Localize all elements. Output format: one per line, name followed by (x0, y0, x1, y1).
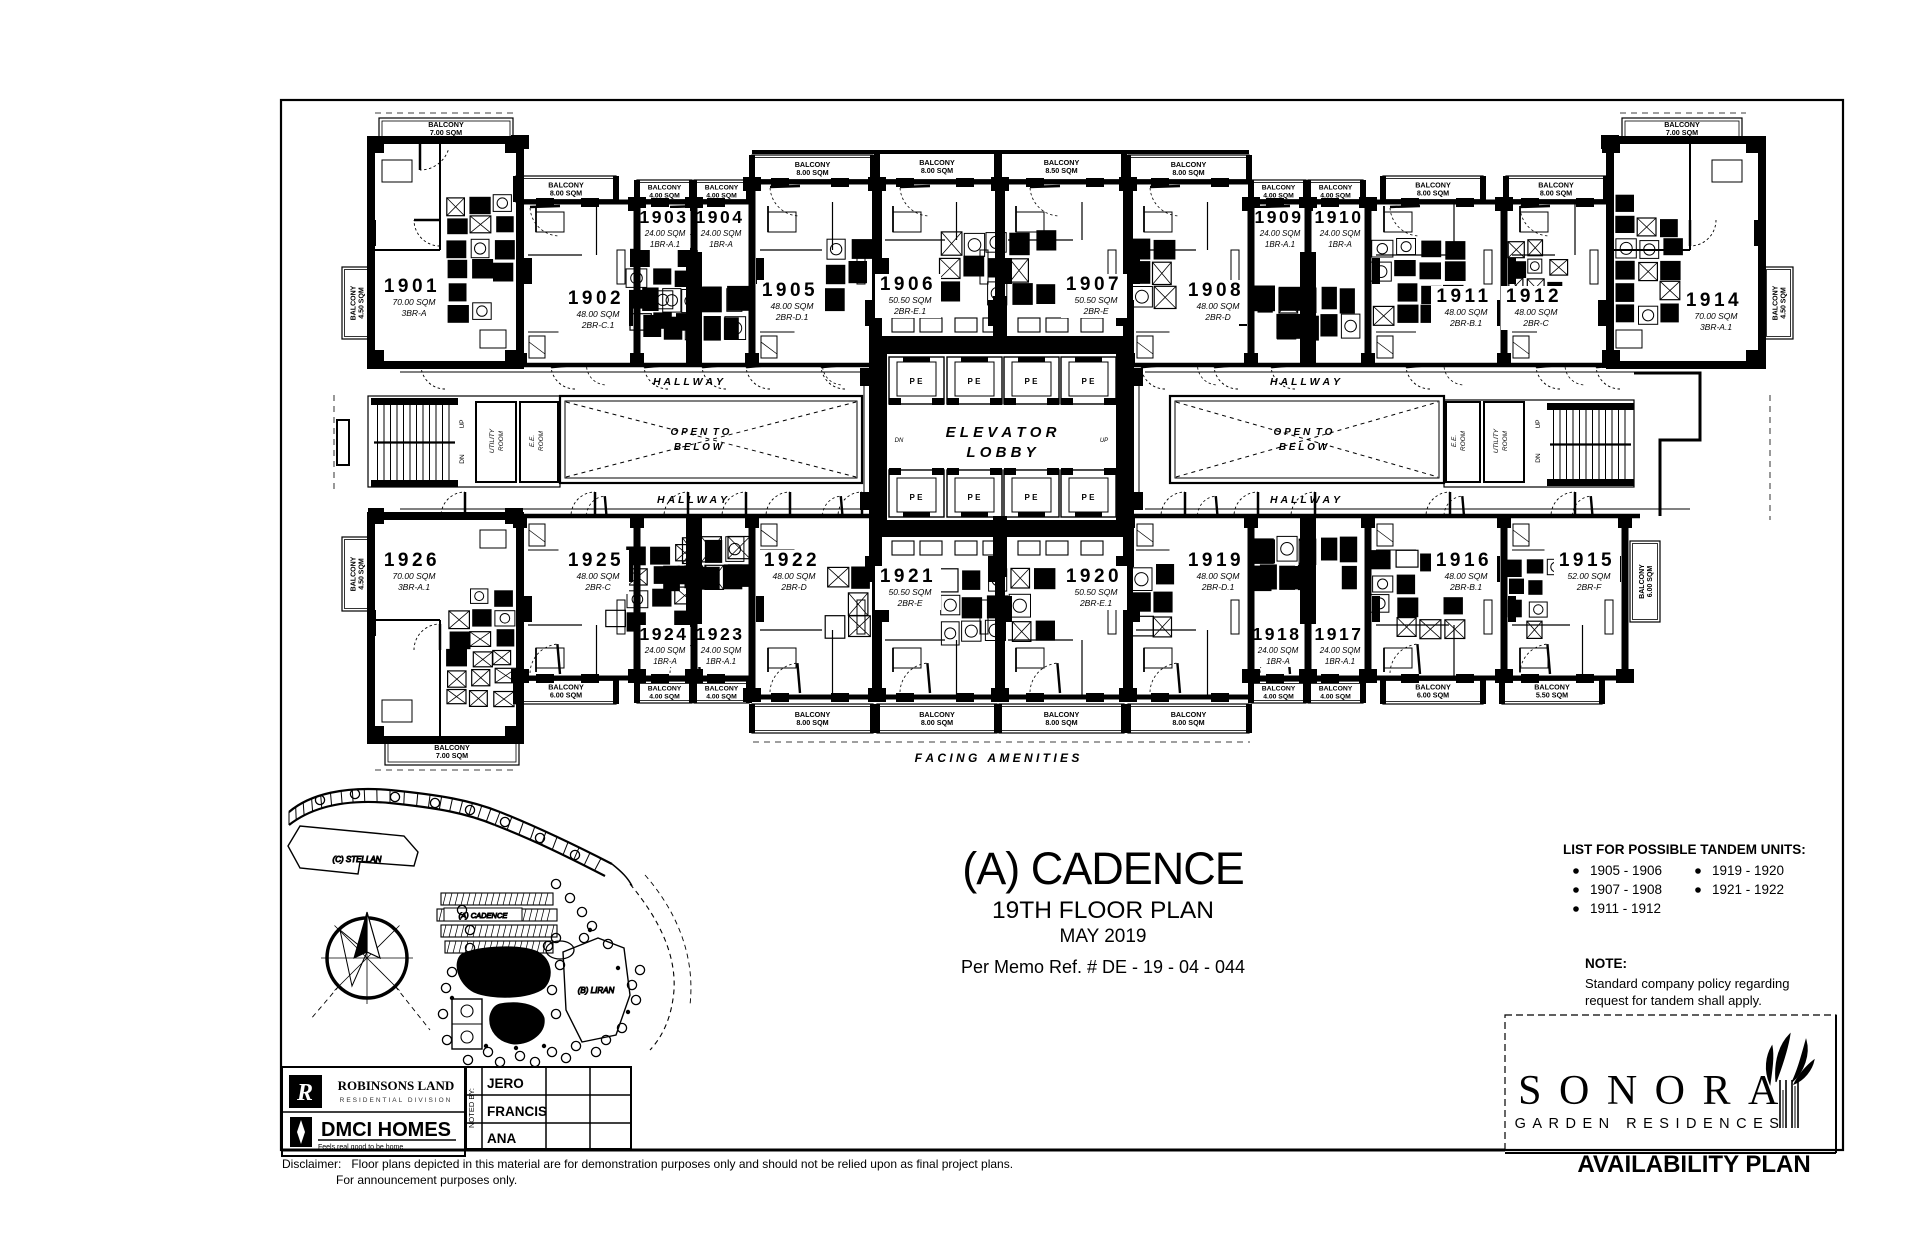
svg-text:4.00 SQM: 4.00 SQM (1320, 694, 1351, 701)
svg-text:3BR-A.1: 3BR-A.1 (1700, 322, 1732, 332)
svg-text:1911: 1911 (1436, 286, 1491, 307)
svg-text:1921 - 1922: 1921 - 1922 (1712, 882, 1784, 897)
svg-text:1BR-A: 1BR-A (1266, 657, 1290, 666)
svg-text:O P E N T O: O P E N T O (1274, 427, 1333, 438)
svg-text:70.00 SQM: 70.00 SQM (393, 297, 437, 307)
svg-text:request for tandem shall apply: request for tandem shall apply. (1585, 993, 1762, 1008)
svg-text:1BR-A: 1BR-A (709, 240, 733, 249)
svg-text:BALCONY: BALCONY (705, 686, 739, 693)
svg-text:8.00 SQM: 8.00 SQM (921, 718, 953, 727)
svg-text:1915: 1915 (1559, 550, 1615, 571)
svg-text:8.00 SQM: 8.00 SQM (1172, 718, 1204, 727)
svg-text:GARDEN RESIDENCES: GARDEN RESIDENCES (1515, 1116, 1786, 1132)
svg-text:24.00 SQM: 24.00 SQM (1259, 229, 1301, 238)
svg-text:2BR-E: 2BR-E (1082, 306, 1108, 316)
svg-text:Standard company policy regard: Standard company policy regarding (1585, 976, 1790, 991)
svg-text:1BR-A.1: 1BR-A.1 (706, 657, 736, 666)
svg-text:1924: 1924 (640, 624, 689, 644)
svg-text:1911 - 1912: 1911 - 1912 (1590, 901, 1661, 916)
svg-text:AVAILABILITY PLAN: AVAILABILITY PLAN (1577, 1151, 1810, 1178)
svg-text:50.50 SQM: 50.50 SQM (1075, 587, 1119, 597)
svg-text:2BR-F: 2BR-F (1576, 582, 1602, 592)
svg-text:H A L L W A Y: H A L L W A Y (653, 376, 724, 388)
svg-text:48.00 SQM: 48.00 SQM (1197, 571, 1241, 581)
svg-text:8.00 SQM: 8.00 SQM (1172, 168, 1204, 177)
svg-text:2BR-D.1: 2BR-D.1 (775, 312, 809, 322)
svg-text:NOTE:: NOTE: (1585, 956, 1627, 971)
svg-text:UP: UP (459, 419, 466, 428)
svg-text:1919 - 1920: 1919 - 1920 (1712, 863, 1784, 878)
svg-text:1914: 1914 (1686, 290, 1742, 311)
svg-text:For announcement purposes only: For announcement purposes only. (336, 1173, 517, 1187)
svg-text:1907 - 1908: 1907 - 1908 (1590, 882, 1662, 897)
svg-text:1902: 1902 (568, 288, 624, 309)
svg-text:3BR-A.1: 3BR-A.1 (398, 582, 430, 592)
svg-text:NOTED BY:: NOTED BY: (467, 1088, 476, 1128)
svg-text:4.00 SQM: 4.00 SQM (706, 694, 737, 701)
svg-text:1916: 1916 (1436, 550, 1492, 571)
svg-text:8.00 SQM: 8.00 SQM (1540, 189, 1572, 198)
svg-text:1909: 1909 (1255, 207, 1304, 227)
svg-text:52.00 SQM: 52.00 SQM (1568, 571, 1612, 581)
svg-text:48.00 SQM: 48.00 SQM (1445, 307, 1489, 317)
svg-text:24.00 SQM: 24.00 SQM (1257, 646, 1299, 655)
svg-text:1BR-A.1: 1BR-A.1 (1325, 657, 1355, 666)
svg-text:R: R (296, 1080, 313, 1106)
svg-text:BALCONY: BALCONY (1773, 285, 1780, 320)
svg-text:1BR-A.1: 1BR-A.1 (1265, 240, 1295, 249)
svg-text:24.00 SQM: 24.00 SQM (1319, 229, 1361, 238)
svg-text:DN: DN (895, 438, 904, 444)
svg-text:LIST FOR POSSIBLE TANDEM UNITS: LIST FOR POSSIBLE TANDEM UNITS: (1563, 842, 1806, 857)
svg-text:1BR-A.1: 1BR-A.1 (650, 240, 680, 249)
svg-text:8.00 SQM: 8.00 SQM (550, 189, 582, 198)
svg-text:6.00 SQM: 6.00 SQM (1417, 691, 1449, 700)
svg-text:H A L L W A Y: H A L L W A Y (657, 494, 728, 506)
svg-text:E L E V A T O R: E L E V A T O R (946, 424, 1057, 441)
svg-text:2BR-D: 2BR-D (780, 582, 807, 592)
svg-text:1910: 1910 (1315, 207, 1364, 227)
svg-text:ROOM: ROOM (1460, 430, 1467, 451)
svg-text:4.00 SQM: 4.00 SQM (649, 694, 680, 701)
svg-text:8.00 SQM: 8.00 SQM (1417, 189, 1449, 198)
svg-text:(A) CADENCE: (A) CADENCE (962, 843, 1244, 894)
svg-text:24.00 SQM: 24.00 SQM (644, 229, 686, 238)
svg-text:19TH FLOOR PLAN: 19TH FLOOR PLAN (992, 897, 1214, 924)
svg-text:7.00 SQM: 7.00 SQM (1666, 128, 1698, 137)
svg-text:BALCONY: BALCONY (1319, 185, 1353, 192)
svg-text:ANA: ANA (487, 1131, 516, 1146)
svg-text:1920: 1920 (1066, 566, 1122, 587)
svg-text:4.50 SQM: 4.50 SQM (359, 558, 366, 590)
svg-text:H A L L W A Y: H A L L W A Y (1270, 494, 1341, 506)
svg-text:2BR-D.1: 2BR-D.1 (1201, 582, 1235, 592)
svg-text:S O N O R A: S O N O R A (1518, 1068, 1782, 1114)
svg-text:1901: 1901 (384, 276, 440, 297)
svg-text:6.00 SQM: 6.00 SQM (1647, 566, 1654, 598)
svg-text:48.00 SQM: 48.00 SQM (577, 571, 621, 581)
svg-text:P E: P E (1025, 377, 1039, 386)
svg-text:1903: 1903 (640, 207, 689, 227)
svg-text:5.50 SQM: 5.50 SQM (1536, 691, 1568, 700)
svg-text:B E L O W: B E L O W (674, 442, 724, 453)
svg-text:24.00 SQM: 24.00 SQM (700, 229, 742, 238)
svg-text:48.00 SQM: 48.00 SQM (1197, 301, 1241, 311)
svg-text:48.00 SQM: 48.00 SQM (1445, 571, 1489, 581)
svg-text:ROBINSONS LAND: ROBINSONS LAND (338, 1078, 455, 1093)
svg-text:2BR-D: 2BR-D (1204, 312, 1231, 322)
svg-text:UP: UP (1535, 419, 1542, 428)
svg-text:BALCONY: BALCONY (648, 185, 682, 192)
svg-text:DMCI HOMES: DMCI HOMES (321, 1119, 451, 1141)
svg-text:F A C I N G A M E N I T I E: F A C I N G A M E N I T I E S (915, 751, 1080, 765)
svg-text:H A L L W A Y: H A L L W A Y (1270, 376, 1341, 388)
svg-text:2BR-B.1: 2BR-B.1 (1449, 318, 1482, 328)
svg-text:24.00 SQM: 24.00 SQM (644, 646, 686, 655)
svg-text:BALCONY: BALCONY (1319, 686, 1353, 693)
svg-text:48.00 SQM: 48.00 SQM (771, 301, 815, 311)
svg-text:P E: P E (1025, 493, 1039, 502)
svg-text:4.00 SQM: 4.00 SQM (1263, 694, 1294, 701)
svg-text:70.00 SQM: 70.00 SQM (393, 571, 437, 581)
svg-text:(B) LIRAN: (B) LIRAN (578, 986, 615, 995)
svg-text:8.00 SQM: 8.00 SQM (1045, 718, 1077, 727)
svg-text:2BR-C: 2BR-C (584, 582, 611, 592)
svg-text:2BR-B.1: 2BR-B.1 (1449, 582, 1482, 592)
svg-text:P E: P E (1082, 377, 1096, 386)
svg-text:1917: 1917 (1315, 624, 1364, 644)
svg-text:DN: DN (1535, 453, 1542, 463)
svg-text:RESIDENTIAL DIVISION: RESIDENTIAL DIVISION (340, 1097, 453, 1104)
svg-text:1912: 1912 (1506, 286, 1562, 307)
svg-text:BALCONY: BALCONY (705, 185, 739, 192)
svg-text:2BR-E: 2BR-E (896, 598, 922, 608)
svg-text:2BR-E.1: 2BR-E.1 (893, 306, 926, 316)
svg-text:7.00 SQM: 7.00 SQM (430, 128, 462, 137)
svg-text:7.00 SQM: 7.00 SQM (436, 751, 468, 760)
svg-text:8.00 SQM: 8.00 SQM (796, 718, 828, 727)
svg-text:1904: 1904 (696, 207, 745, 227)
svg-text:3BR-A: 3BR-A (401, 308, 426, 318)
svg-text:BALCONY: BALCONY (351, 285, 358, 320)
svg-text:50.50 SQM: 50.50 SQM (889, 587, 933, 597)
svg-text:O P E N T O: O P E N T O (671, 427, 730, 438)
svg-text:UTILITY: UTILITY (489, 428, 496, 453)
svg-text:B E L O W: B E L O W (1279, 442, 1329, 453)
svg-text:BALCONY: BALCONY (648, 686, 682, 693)
svg-text:48.00 SQM: 48.00 SQM (577, 309, 621, 319)
svg-text:1906: 1906 (880, 274, 936, 295)
svg-text:1922: 1922 (764, 550, 820, 571)
svg-text:E.E.: E.E. (1451, 435, 1458, 447)
svg-text:Per Memo Ref. # DE - 19 - 04 -: Per Memo Ref. # DE - 19 - 04 - 044 (961, 957, 1245, 977)
svg-text:1905: 1905 (762, 280, 818, 301)
svg-text:P E: P E (968, 493, 982, 502)
svg-text:24.00 SQM: 24.00 SQM (1319, 646, 1361, 655)
svg-text:1925: 1925 (568, 550, 624, 571)
svg-text:50.50 SQM: 50.50 SQM (1075, 295, 1119, 305)
svg-text:BALCONY: BALCONY (1262, 185, 1296, 192)
svg-text:FRANCIS: FRANCIS (487, 1104, 547, 1119)
svg-text:1921: 1921 (880, 566, 936, 587)
svg-text:2BR-E.1: 2BR-E.1 (1079, 598, 1112, 608)
svg-text:8.00 SQM: 8.00 SQM (921, 166, 953, 175)
svg-text:ROOM: ROOM (538, 430, 545, 451)
svg-text:P E: P E (910, 493, 924, 502)
svg-text:1926: 1926 (384, 550, 440, 571)
svg-text:1905 - 1906: 1905 - 1906 (1590, 863, 1662, 878)
svg-text:BALCONY: BALCONY (1639, 564, 1646, 599)
svg-text:1918: 1918 (1253, 624, 1302, 644)
svg-text:P E: P E (968, 377, 982, 386)
svg-text:BALCONY: BALCONY (1262, 686, 1296, 693)
svg-text:4.50 SQM: 4.50 SQM (359, 287, 366, 319)
svg-text:ROOM: ROOM (498, 430, 505, 451)
svg-text:L O B B Y: L O B B Y (966, 444, 1037, 461)
svg-text:P E: P E (910, 377, 924, 386)
svg-text:4.50 SQM: 4.50 SQM (1781, 287, 1788, 319)
svg-text:UP: UP (1100, 438, 1108, 444)
svg-text:1923: 1923 (696, 624, 745, 644)
svg-text:BALCONY: BALCONY (351, 556, 358, 591)
svg-text:P E: P E (1082, 493, 1096, 502)
svg-text:1908: 1908 (1188, 280, 1244, 301)
svg-text:Feels real good to be home: Feels real good to be home (318, 1144, 403, 1151)
svg-text:1BR-A: 1BR-A (653, 657, 677, 666)
svg-text:1907: 1907 (1066, 274, 1122, 295)
svg-text:1919: 1919 (1188, 550, 1244, 571)
svg-text:48.00 SQM: 48.00 SQM (1515, 307, 1559, 317)
svg-text:MAY 2019: MAY 2019 (1060, 926, 1147, 947)
svg-text:48.00 SQM: 48.00 SQM (773, 571, 817, 581)
svg-text:Disclaimer: Floor plans depi: Disclaimer: Floor plans depicted in this… (282, 1157, 1013, 1171)
svg-text:UTILITY: UTILITY (1493, 428, 1500, 453)
svg-text:6.00 SQM: 6.00 SQM (550, 691, 582, 700)
svg-text:24.00 SQM: 24.00 SQM (700, 646, 742, 655)
svg-text:70.00 SQM: 70.00 SQM (1695, 311, 1739, 321)
svg-text:50.50 SQM: 50.50 SQM (889, 295, 933, 305)
svg-text:8.00 SQM: 8.00 SQM (796, 168, 828, 177)
svg-text:(C) STELLAN: (C) STELLAN (333, 855, 382, 864)
svg-text:2BR-C.1: 2BR-C.1 (581, 320, 615, 330)
svg-text:2BR-C: 2BR-C (1522, 318, 1549, 328)
svg-text:1BR-A: 1BR-A (1328, 240, 1352, 249)
svg-text:JERO: JERO (487, 1076, 524, 1091)
svg-text:E.E.: E.E. (529, 435, 536, 447)
svg-text:ROOM: ROOM (1502, 430, 1509, 451)
svg-text:DN: DN (459, 454, 466, 464)
svg-text:8.50 SQM: 8.50 SQM (1045, 166, 1077, 175)
